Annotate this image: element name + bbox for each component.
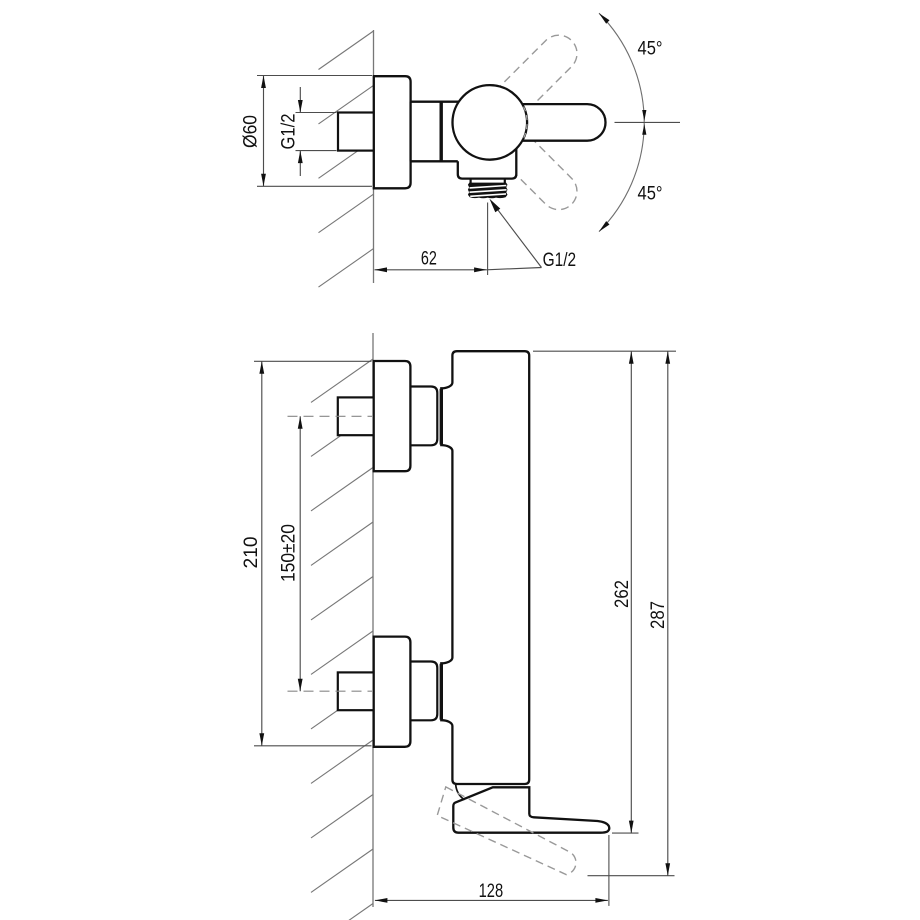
svg-text:128: 128 bbox=[479, 881, 504, 902]
svg-text:G1/2: G1/2 bbox=[279, 114, 300, 150]
svg-text:Ø60: Ø60 bbox=[241, 115, 262, 148]
svg-text:287: 287 bbox=[648, 601, 669, 629]
svg-text:45°: 45° bbox=[638, 184, 663, 205]
svg-text:45°: 45° bbox=[638, 39, 663, 60]
svg-text:262: 262 bbox=[612, 580, 633, 608]
svg-text:G1/2: G1/2 bbox=[543, 250, 577, 271]
svg-text:62: 62 bbox=[421, 249, 437, 270]
svg-text:210: 210 bbox=[241, 537, 262, 569]
svg-text:150±20: 150±20 bbox=[279, 524, 300, 582]
